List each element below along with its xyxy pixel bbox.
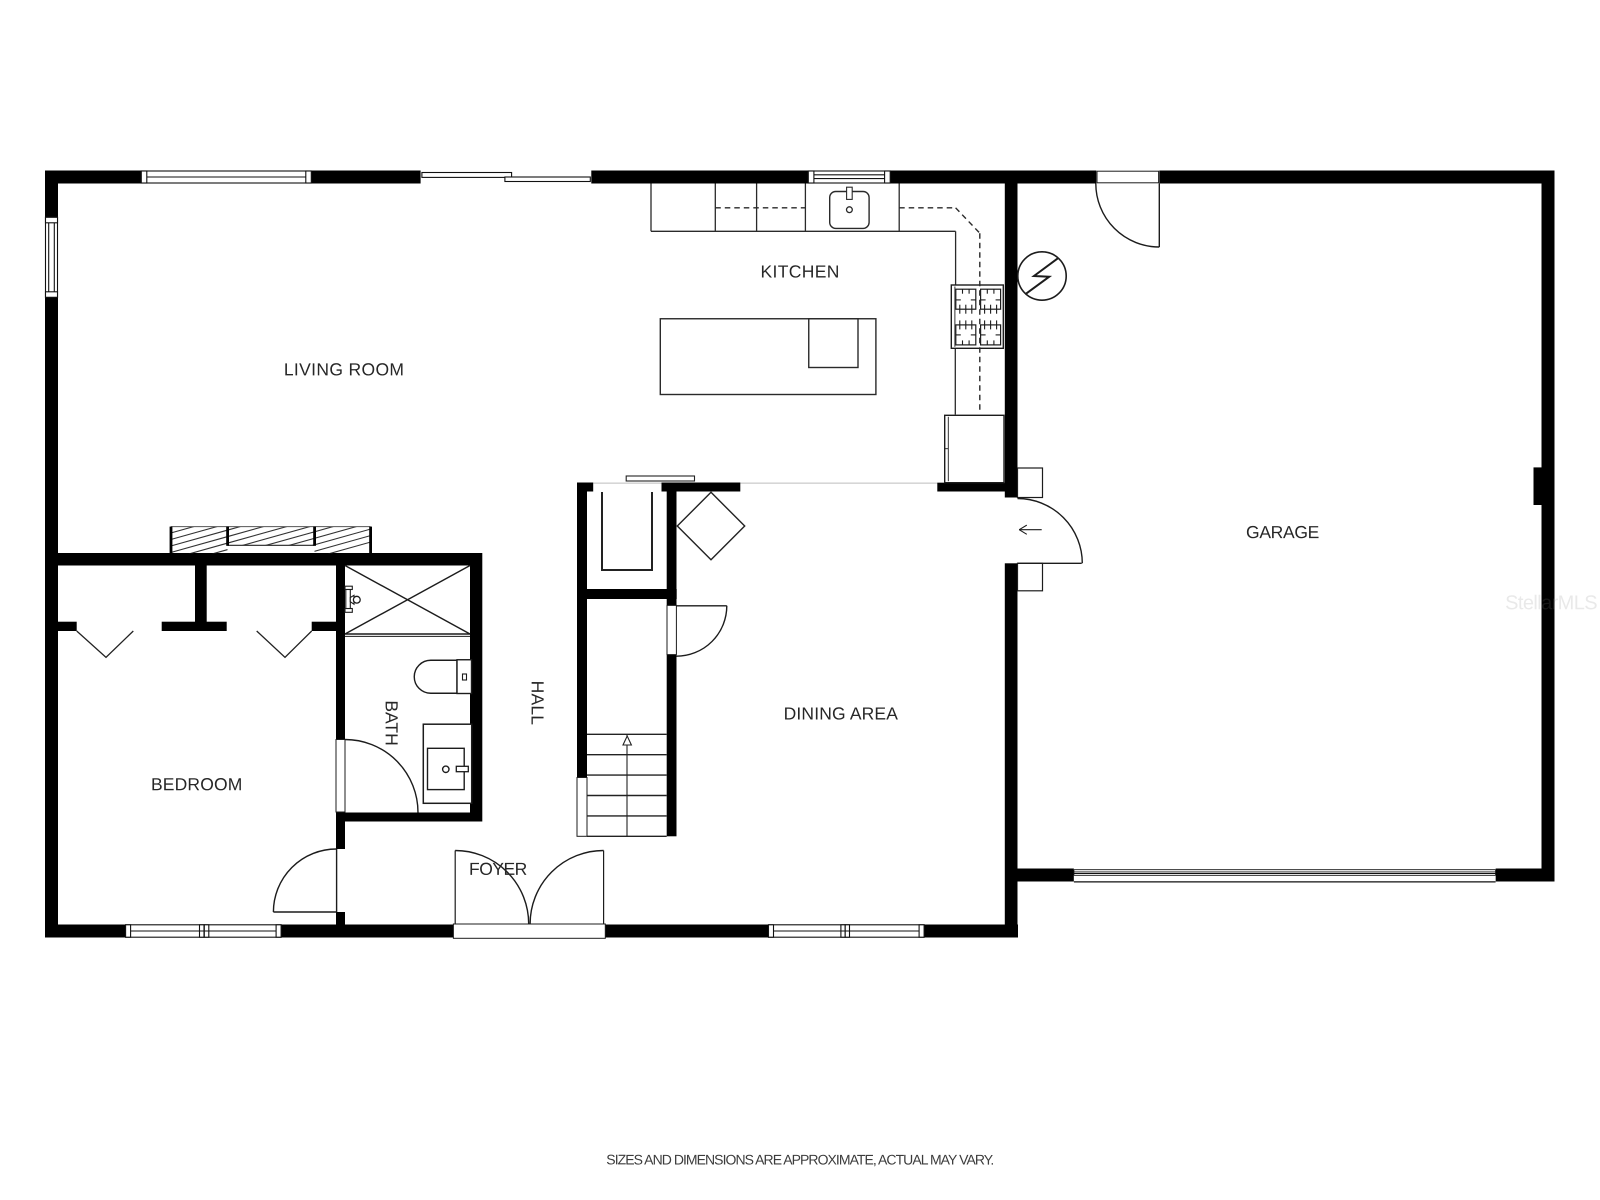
svg-text:BEDROOM: BEDROOM xyxy=(151,774,242,794)
svg-text:LIVING ROOM: LIVING ROOM xyxy=(284,359,405,379)
svg-text:BATH: BATH xyxy=(382,700,402,745)
svg-text:SIZES AND DIMENSIONS ARE APPRO: SIZES AND DIMENSIONS ARE APPROXIMATE, AC… xyxy=(606,1151,993,1167)
svg-text:GARAGE: GARAGE xyxy=(1246,522,1319,542)
svg-text:DINING AREA: DINING AREA xyxy=(784,703,899,723)
svg-text:KITCHEN: KITCHEN xyxy=(760,261,839,281)
svg-text:FOYER: FOYER xyxy=(469,859,527,879)
svg-text:StellarMLS: StellarMLS xyxy=(1505,592,1597,614)
svg-text:HALL: HALL xyxy=(528,681,548,726)
